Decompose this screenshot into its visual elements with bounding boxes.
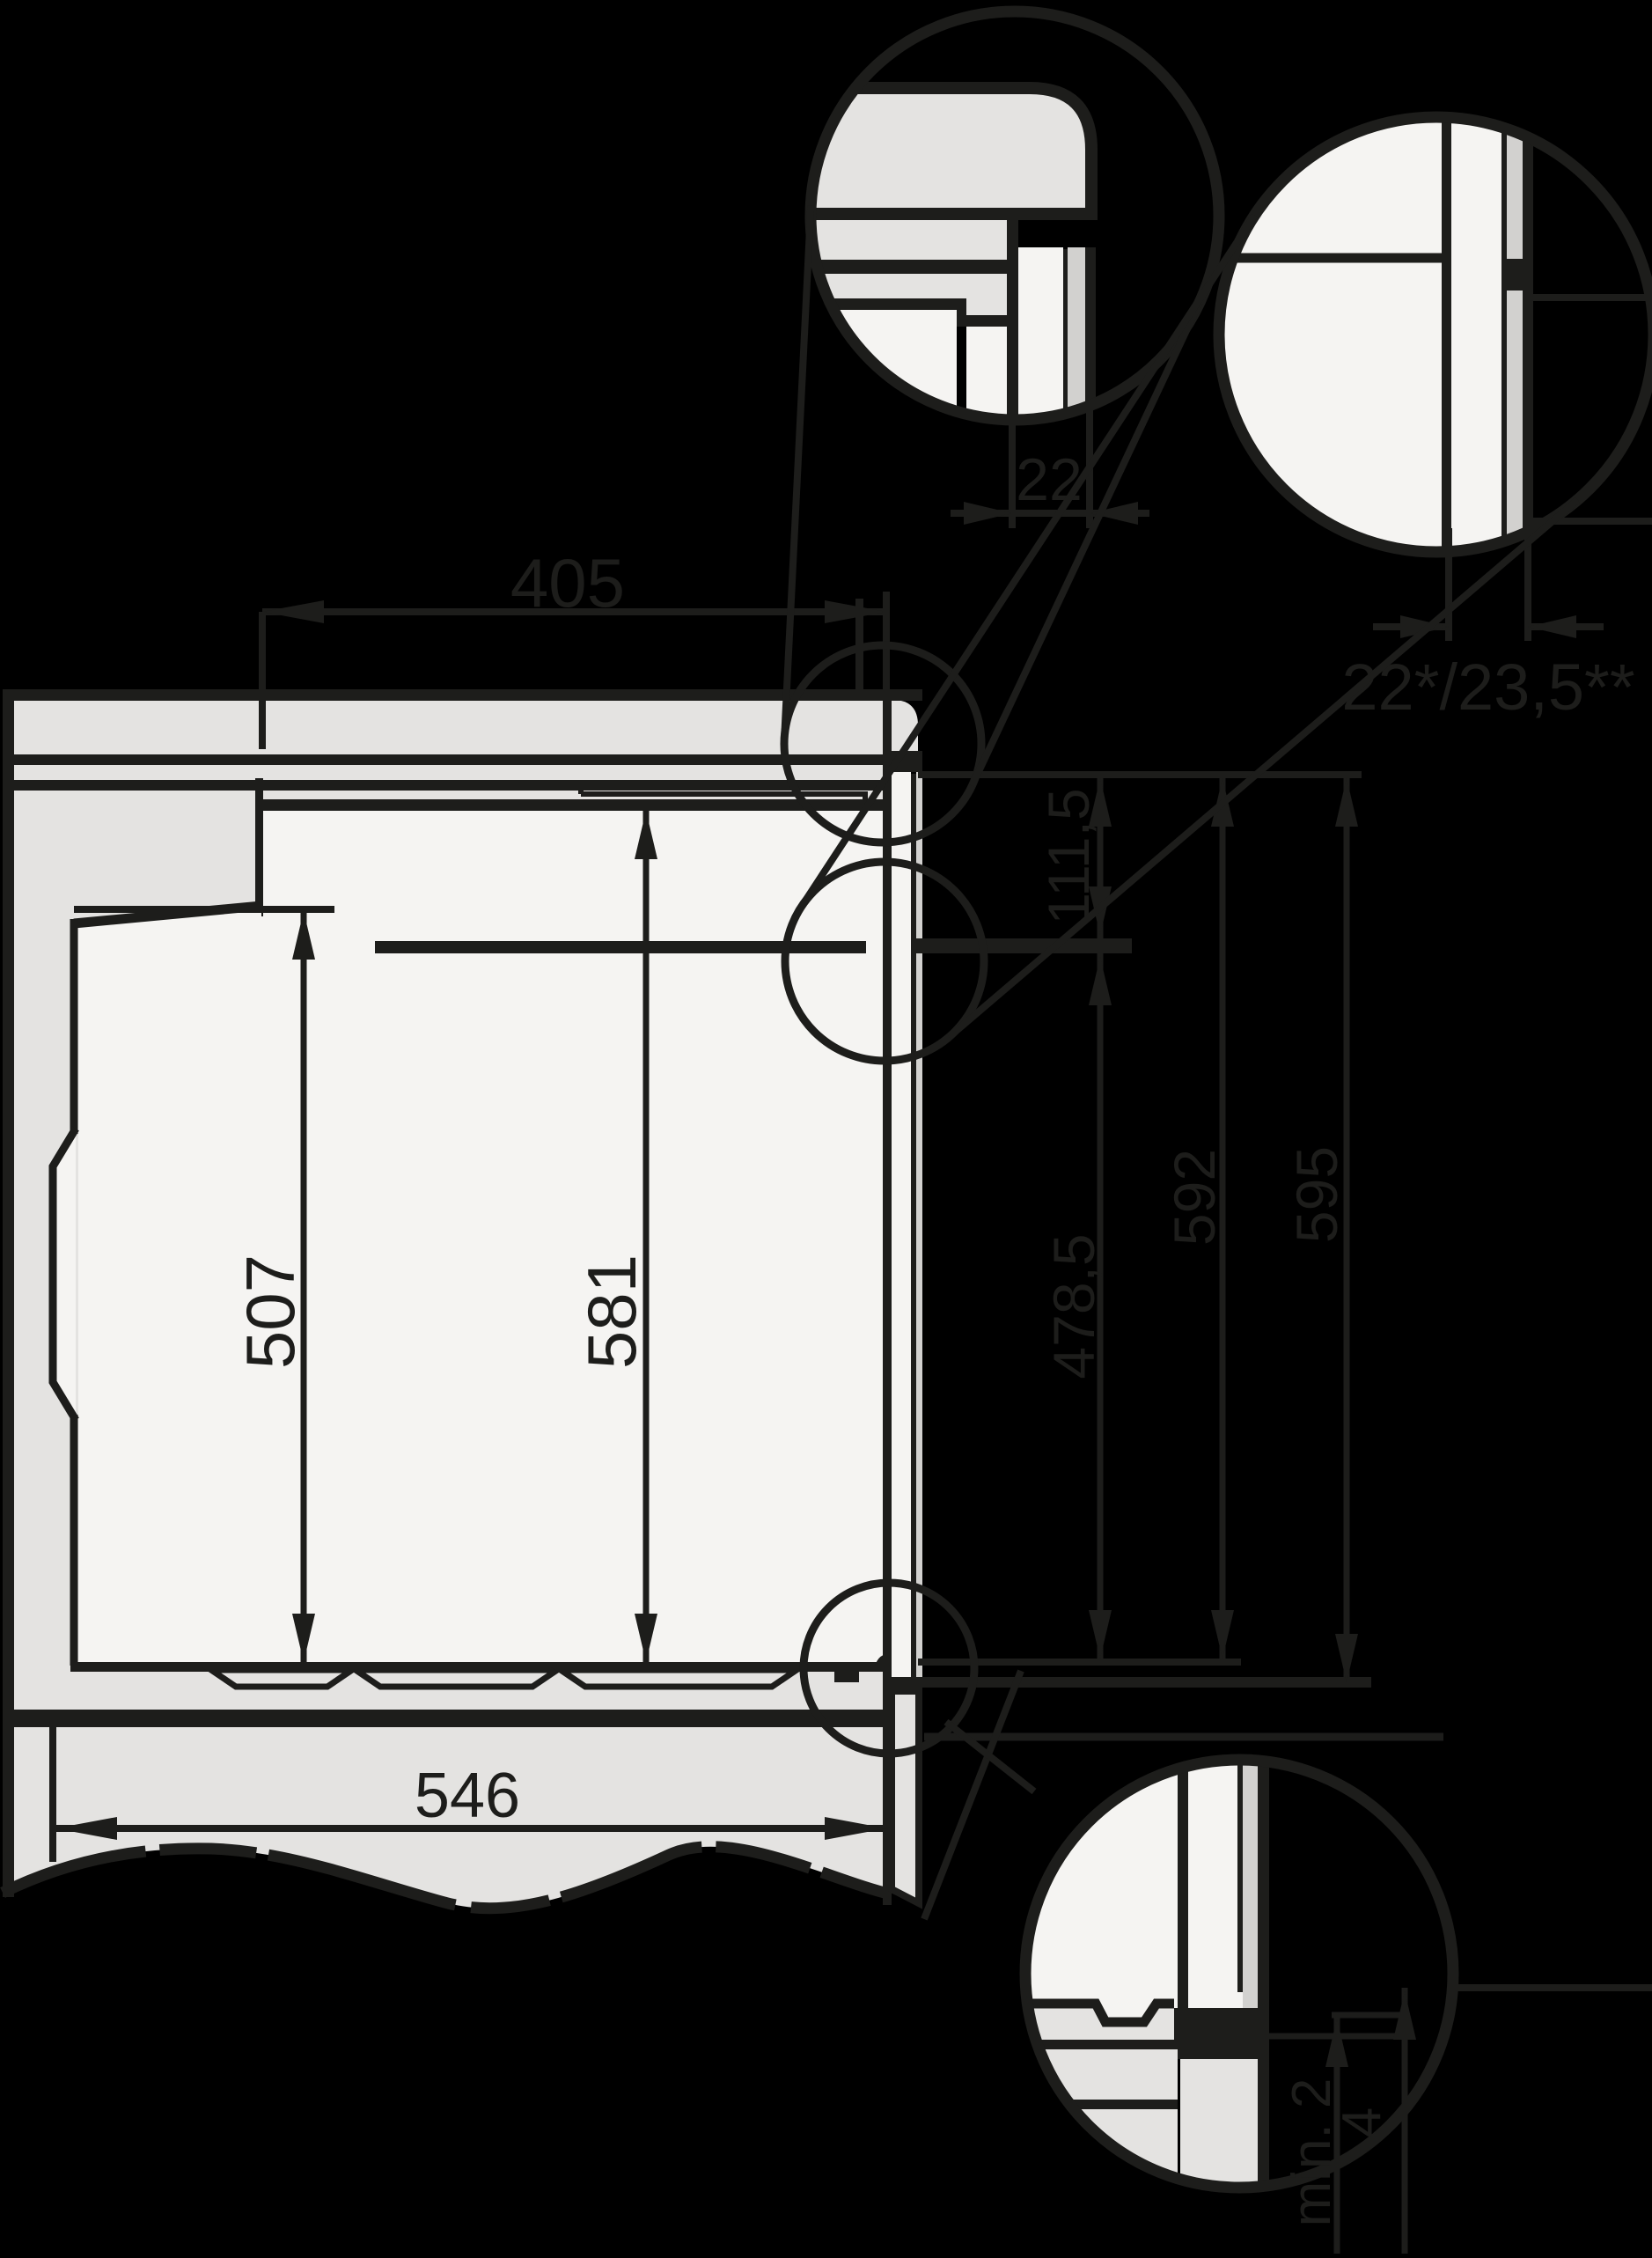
svg-text:592: 592	[1162, 1149, 1227, 1246]
svg-text:4: 4	[1332, 2107, 1392, 2137]
svg-text:22: 22	[1016, 446, 1083, 513]
svg-text:478,5: 478,5	[1041, 1233, 1106, 1379]
svg-text:min. 2: min. 2	[1281, 2078, 1342, 2227]
svg-text:405: 405	[510, 544, 625, 622]
svg-text:581: 581	[573, 1254, 650, 1369]
svg-text:111,5: 111,5	[1036, 788, 1101, 924]
svg-text:595: 595	[1284, 1146, 1349, 1243]
svg-text:546: 546	[415, 1761, 520, 1831]
svg-text:507: 507	[231, 1254, 309, 1369]
